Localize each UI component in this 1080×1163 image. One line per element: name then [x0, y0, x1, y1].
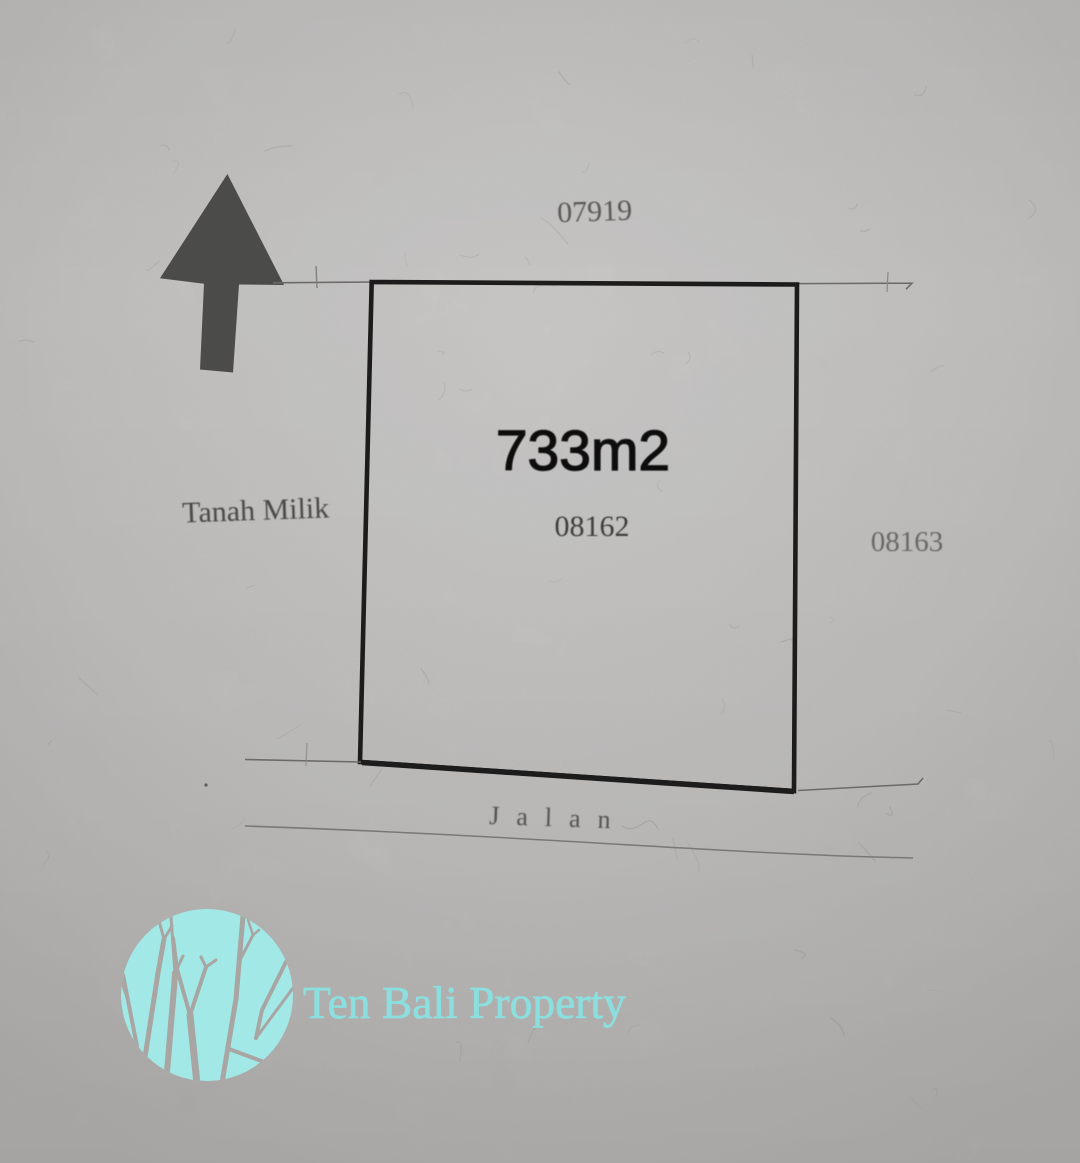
svg-text:733m2: 733m2 — [496, 419, 670, 483]
svg-text:Tanah Milik: Tanah Milik — [182, 491, 330, 529]
svg-text:08162: 08162 — [555, 510, 630, 543]
svg-text:Ten Bali Property: Ten Bali Property — [303, 977, 626, 1028]
svg-text:Jalan: Jalan — [489, 801, 628, 835]
svg-text:07919: 07919 — [557, 194, 633, 230]
svg-text:08163: 08163 — [871, 526, 944, 558]
